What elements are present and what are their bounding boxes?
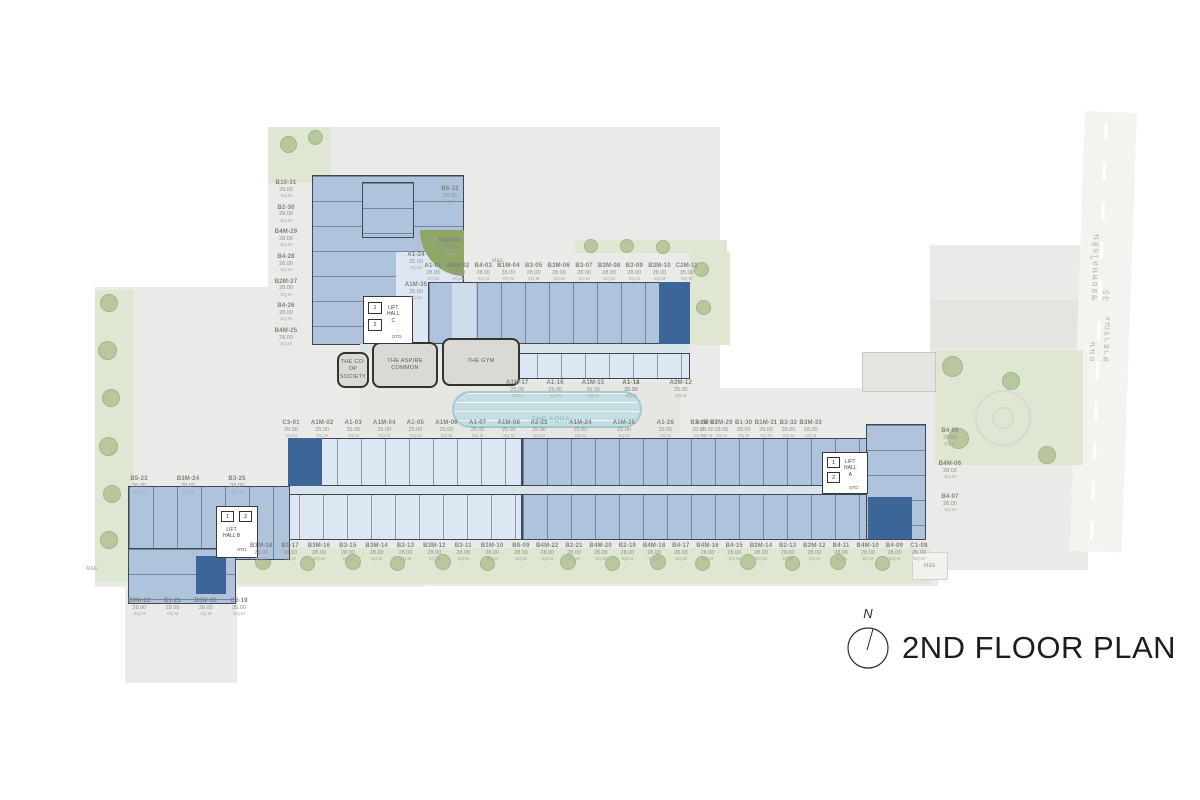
unit-id: A1M-17 (506, 380, 529, 387)
unit-label: B2M-12 28.00 SQ.M (803, 543, 826, 561)
unit-label: B3-32 28.00 SQ.M (779, 420, 797, 438)
unit-sqm: SQ.M (889, 556, 901, 561)
unit-sqm: SQ.M (167, 611, 179, 616)
north-compass-icon: N (840, 604, 900, 674)
tree (100, 294, 118, 312)
unit-id: B4M-06 (939, 461, 962, 468)
unit-sqm: SQ.M (862, 556, 874, 561)
unit-id: B4M-02 (447, 263, 470, 270)
unit-label: B4-09 28.00 SQ.M (886, 543, 904, 561)
unit-sqm: SQ.M (284, 556, 296, 561)
tree (102, 389, 120, 407)
unit-id: B3-13 (397, 543, 414, 550)
unit-id: B4M-29 (275, 229, 298, 236)
unit-label: B4M-06 28.00 SQ.M (939, 461, 962, 479)
central-wing-north-west (288, 438, 522, 486)
unit-id: C3-01 (282, 420, 299, 427)
unit-sqm: SQ.M (313, 556, 325, 561)
top-row-labels: A1-01 28.00 SQ.M B4M-02 28.00 SQ.M B4-03… (424, 263, 698, 281)
unit-sqm: SQ.M (944, 441, 956, 446)
tree (620, 239, 634, 253)
tree (308, 130, 323, 145)
road-name-label: ถนนสาธารณะ ซอยพหลโยธิน 35 (1084, 231, 1117, 362)
unit-sqm: SQ.M (486, 556, 498, 561)
unit-id: B4-17 (672, 543, 689, 550)
unit-label: B4M-33 28.00 SQ.M (439, 238, 462, 256)
unit-label: A1-03 25.00 SQ.M (344, 420, 362, 438)
unit-label: B2-19 28.00 SQ.M (618, 543, 636, 561)
unit-id: B3-09 (626, 263, 643, 270)
lift-a-1: 1 (827, 457, 840, 468)
unit-label: A1-24 25.00 SQ.M (407, 252, 425, 270)
unit-label: C2-19 35.00 SQ.M (230, 598, 248, 616)
unit-sqm: SQ.M (410, 433, 422, 438)
unit-label: B3M-06 28.00 SQ.M (548, 263, 571, 281)
central-row-west-labels: C3-01 35.00 SQ.M A1M-02 25.00 SQ.M A1-03… (282, 420, 520, 438)
unit-sqm: SQ.M (134, 611, 146, 616)
unit-label: B3M-14 28.00 SQ.M (365, 543, 388, 561)
page-title: 2ND FLOOR PLAN (902, 630, 1176, 666)
unit-label: A1M-35 25.00 SQ.M (405, 282, 428, 300)
unit-label: B2-13 28.00 SQ.M (779, 543, 797, 561)
tree (584, 239, 598, 253)
lift-hall-b-sto: STO. (237, 547, 247, 552)
unit-label: B4M-10 28.00 SQ.M (857, 543, 880, 561)
coop-society-room: THE CO-OP SOCIETY (337, 352, 369, 388)
lift-hall-a-sto: STO. (849, 485, 859, 490)
unit-label: B3M-20 28.00 SQ.M (194, 598, 217, 616)
unit-sqm: SQ.M (472, 433, 484, 438)
unit-sqm: SQ.M (716, 433, 728, 438)
unit-id: A1-01 (424, 263, 441, 270)
unit-label: B3-15 28.00 SQ.M (339, 543, 357, 561)
mid-row-west-labels: A1M-17 25.00 SQ.M A1-16 25.00 SQ.M A1M-1… (506, 380, 640, 398)
unit-id: B3M-12 (423, 543, 446, 550)
unit-id: B1M-10 (481, 543, 504, 550)
unit-sqm: SQ.M (280, 218, 292, 223)
unit-id: A1-13 (622, 380, 639, 387)
unit-label: B5-23 38.00 SQ.M (130, 476, 148, 494)
unit-sqm: SQ.M (444, 251, 456, 256)
unit-label: A1-01 28.00 SQ.M (424, 263, 442, 281)
unit-label: B3M-16 28.00 SQ.M (308, 543, 331, 561)
unit-label: A1M-04 25.00 SQ.M (373, 420, 396, 438)
unit-sqm: SQ.M (280, 242, 292, 247)
unit-label: B1-17 28.00 SQ.M (281, 543, 299, 561)
unit-label: B1M-18 28.00 SQ.M (250, 543, 273, 561)
unit-id: B4M-22 (536, 543, 559, 550)
unit-sqm: SQ.M (427, 276, 439, 281)
unit-label: B2-21 28.00 SQ.M (565, 543, 583, 561)
lift-b-1: 1 (221, 511, 234, 522)
unit-label: A1-07 25.00 SQ.M (469, 420, 487, 438)
unit-id: A1M-15 (582, 380, 605, 387)
unit-label: B1M-04 35.00 SQ.M (497, 263, 520, 281)
unit-sqm: SQ.M (587, 393, 599, 398)
unit-sqm: SQ.M (693, 433, 705, 438)
corner-unit-east-dark (868, 497, 912, 539)
west-wing-labels: B10-31 28.00 SQ.M B2-30 28.00 SQ.M B4M-2… (264, 180, 308, 346)
unit-label: B3-25 38.00 SQ.M (228, 476, 246, 494)
lift-hall-c-label: LIFT HALL C (387, 305, 400, 324)
unit-label: B3-28 28.00 SQ.M (690, 420, 708, 438)
unit-sqm: SQ.M (503, 433, 515, 438)
unit-id: B5-23 (130, 476, 147, 483)
unit-label: B3M-33 28.00 SQ.M (799, 420, 822, 438)
corner-unit-southwest-dark (196, 556, 226, 594)
unit-sqm: SQ.M (478, 276, 490, 281)
unit-id: A1M-04 (373, 420, 396, 427)
unit-id: B6-32 (441, 186, 458, 193)
unit-label: B3M-24 28.00 SQ.M (177, 476, 200, 494)
unit-label: B4-11 28.00 SQ.M (832, 543, 850, 561)
plaza-path-ring-inner (992, 407, 1014, 429)
unit-id: B3-11 (455, 543, 472, 550)
unit-id: A1M-35 (405, 282, 428, 289)
unit-sqm: SQ.M (675, 393, 687, 398)
unit-label: B3-11 28.00 SQ.M (454, 543, 472, 561)
unit-sqm: SQ.M (316, 433, 328, 438)
tree (1038, 446, 1056, 464)
lift-c-1: 1 (368, 302, 382, 314)
unit-sqm: SQ.M (280, 316, 292, 321)
unit-id: A1-24 (407, 252, 424, 259)
unit-id: B4-07 (941, 494, 958, 501)
unit-id: B2M-12 (803, 543, 826, 550)
unit-id: B3-05 (525, 263, 542, 270)
unit-id: B4-09 (886, 543, 903, 550)
unit-id: B4M-33 (439, 238, 462, 245)
lift-b-2: 2 (239, 511, 252, 522)
unit-sqm: SQ.M (285, 433, 297, 438)
driveway (930, 300, 1090, 348)
unit-label: B2M-27 28.00 SQ.M (275, 279, 298, 297)
unit-id: B3M-10 (648, 263, 671, 270)
corner-unit-c3-01 (288, 438, 322, 486)
unit-sqm: SQ.M (728, 556, 740, 561)
north-block-labels: B6-32 28.00 SQ.M B4M-33 28.00 SQ.M (428, 186, 472, 256)
unit-id: A2M-12 (669, 380, 692, 387)
unit-sqm: SQ.M (629, 276, 641, 281)
unit-id: B1M-18 (250, 543, 273, 550)
mid-row-east-labels: A1-13 25.00 SQ.M A2M-12 25.00 SQ.M (622, 380, 692, 398)
unit-label: C1-08 35.00 SQ.M (910, 543, 928, 561)
unit-label: B3M-08 28.00 SQ.M (598, 263, 621, 281)
unit-label: A1M-24 25.00 SQ.M (569, 420, 592, 438)
tree (1002, 372, 1020, 390)
unit-id: A1M-08 (497, 420, 520, 427)
tree (942, 356, 963, 377)
unit-id: B4-26 (277, 303, 294, 310)
unit-id: B2-19 (619, 543, 636, 550)
unit-sqm: SQ.M (575, 433, 587, 438)
north-block-building (362, 182, 414, 238)
unit-sqm: SQ.M (182, 489, 194, 494)
unit-label: B4-26 28.00 SQ.M (277, 303, 295, 321)
unit-id: B1-30 (735, 420, 752, 427)
unit-label: A1M-25 25.00 SQ.M (613, 420, 636, 438)
unit-label: B4M-20 28.00 SQ.M (589, 543, 612, 561)
unit-label: B2-30 28.00 SQ.M (277, 205, 295, 223)
unit-label: B1M-10 28.00 SQ.M (481, 543, 504, 561)
central-row-east-labels: B3-28 28.00 SQ.M B3M-29 28.00 SQ.M B1-30… (690, 420, 822, 438)
unit-label: B3M-29 28.00 SQ.M (710, 420, 733, 438)
unit-id: A1-05 (407, 420, 424, 427)
lift-hall-c-sto: STO. (392, 334, 402, 339)
aspire-common-label: THE ASPIRE COMMON (387, 358, 422, 372)
southwest-top-labels: B5-23 38.00 SQ.M B3M-24 28.00 SQ.M B3-25… (130, 476, 246, 494)
unit-label: B4-15 28.00 SQ.M (725, 543, 743, 561)
central-wing-south-west (250, 494, 522, 540)
unit-sqm: SQ.M (595, 556, 607, 561)
central-wing-south-east (522, 494, 908, 540)
unit-id: B9M-22 (128, 598, 151, 605)
unit-sqm: SQ.M (457, 556, 469, 561)
unit-sqm: SQ.M (512, 393, 524, 398)
unit-id: B2-21 (565, 543, 582, 550)
floor-plan-canvas: ถนนสาธารณะ ซอยพหลโยธิน 35 THE AQUA (0, 0, 1200, 800)
unit-id: B3M-24 (177, 476, 200, 483)
unit-sqm: SQ.M (342, 556, 354, 561)
unit-id: B3-32 (780, 420, 797, 427)
unit-id: A1-16 (547, 380, 564, 387)
gym-label: THE GYM (467, 358, 494, 365)
unit-label: B9-09 28.00 SQ.M (512, 543, 530, 561)
coop-society-label: THE CO-OP SOCIETY (339, 359, 367, 380)
unit-id: B3M-20 (194, 598, 217, 605)
unit-id: B3-07 (575, 263, 592, 270)
unit-sqm: SQ.M (444, 199, 456, 204)
unit-sqm: SQ.M (233, 611, 245, 616)
unit-label: B4-28 28.00 SQ.M (277, 254, 295, 272)
unit-label: B9M-22 28.00 SQ.M (128, 598, 151, 616)
lift-c-2: 2 (368, 319, 382, 331)
unit-id: B1-21 (164, 598, 181, 605)
unit-label: B2M-14 28.00 SQ.M (750, 543, 773, 561)
unit-sqm: SQ.M (603, 276, 615, 281)
unit-id: B2M-14 (750, 543, 773, 550)
central-corridor (288, 486, 908, 494)
unit-sqm: SQ.M (528, 276, 540, 281)
unit-label: C2M-11 35.00 SQ.M (676, 263, 698, 281)
road-name-line2: ซอยพหลโยธิน 35 (1086, 231, 1116, 301)
unit-id: A1M-24 (569, 420, 592, 427)
unit-sqm: SQ.M (549, 393, 561, 398)
south-row-west-labels: B1M-18 28.00 SQ.M B1-17 28.00 SQ.M B3M-1… (250, 543, 530, 561)
unit-id: B4M-18 (643, 543, 666, 550)
unit-sqm: SQ.M (654, 276, 666, 281)
unit-sqm: SQ.M (944, 507, 956, 512)
unit-id: A1-07 (469, 420, 486, 427)
unit-sqm: SQ.M (429, 556, 441, 561)
unit-id: B2-13 (779, 543, 796, 550)
unit-label: B3-13 28.00 SQ.M (397, 543, 415, 561)
unit-id: A1-03 (345, 420, 362, 427)
tree (99, 437, 118, 456)
unit-label: C3-01 35.00 SQ.M (282, 420, 300, 438)
lift-hall-a-label: LIFT HALL A (844, 459, 857, 478)
unit-sqm: SQ.M (809, 556, 821, 561)
unit-label: A1M-15 25.00 SQ.M (582, 380, 605, 398)
unit-id: B4M-10 (857, 543, 880, 550)
unit-sqm: SQ.M (782, 556, 794, 561)
north-wing-pale-unit (452, 283, 476, 343)
unit-sqm: SQ.M (441, 433, 453, 438)
unit-id: B3M-14 (365, 543, 388, 550)
tree (696, 300, 711, 315)
unit-label: B6-32 28.00 SQ.M (441, 186, 459, 204)
svg-text:N: N (863, 606, 873, 621)
unit-id: B3-25 (228, 476, 245, 483)
road-name-line1: ถนนสาธารณะ (1084, 305, 1114, 362)
unit-sqm: SQ.M (515, 556, 527, 561)
east-col-labels: B4-05 28.00 SQ.M B4M-06 28.00 SQ.M B4-07… (930, 428, 970, 512)
unit-sqm: SQ.M (503, 276, 515, 281)
aspire-common-room: THE ASPIRE COMMON (372, 342, 438, 388)
unit-sqm: SQ.M (347, 433, 359, 438)
unit-id: B3-15 (339, 543, 356, 550)
unit-label: A2-23 25.00 SQ.M (530, 420, 548, 438)
unit-id: B3-28 (690, 420, 707, 427)
unit-id: C2-19 (230, 598, 247, 605)
unit-id: B9-09 (512, 543, 529, 550)
unit-id: B4-15 (726, 543, 743, 550)
corner-unit-c2m11 (659, 282, 690, 348)
service-structure (862, 352, 936, 392)
unit-label: B3M-12 28.00 SQ.M (423, 543, 446, 561)
unit-sqm: SQ.M (622, 556, 634, 561)
unit-sqm: SQ.M (568, 556, 580, 561)
unit-label: B1M-31 28.00 SQ.M (755, 420, 778, 438)
unit-sqm: SQ.M (133, 489, 145, 494)
unit-sqm: SQ.M (280, 341, 292, 346)
unit-sqm: SQ.M (738, 433, 750, 438)
south-row-east-labels: B4M-22 28.00 SQ.M B2-21 28.00 SQ.M B4M-2… (536, 543, 928, 561)
unit-sqm: SQ.M (578, 276, 590, 281)
unit-id: B3M-16 (308, 543, 331, 550)
unit-label: B4M-16 28.00 SQ.M (696, 543, 719, 561)
unit-id: A1M-06 (435, 420, 458, 427)
unit-sqm: SQ.M (944, 474, 956, 479)
gym-room: THE GYM (442, 338, 520, 386)
unit-sqm: SQ.M (542, 556, 554, 561)
unit-id: B4M-20 (589, 543, 612, 550)
unit-sqm: SQ.M (280, 193, 292, 198)
unit-label: B3-09 28.00 SQ.M (625, 263, 643, 281)
unit-label: B4-03 28.00 SQ.M (474, 263, 492, 281)
unit-sqm: SQ.M (760, 433, 772, 438)
unit-label: B3M-10 28.00 SQ.M (648, 263, 671, 281)
tree (280, 136, 297, 153)
unit-sqm: SQ.M (280, 292, 292, 297)
unit-sqm: SQ.M (231, 489, 243, 494)
unit-label: B3-07 28.00 SQ.M (575, 263, 593, 281)
public-road: ถนนสาธารณะ ซอยพหลโยธิน 35 (1070, 111, 1137, 553)
unit-label: B4-05 28.00 SQ.M (941, 428, 959, 446)
unit-sqm: SQ.M (452, 276, 464, 281)
unit-label: B3-05 28.00 SQ.M (525, 263, 543, 281)
unit-sqm: SQ.M (410, 295, 422, 300)
unit-id: B1M-04 (497, 263, 520, 270)
unit-sqm: SQ.M (256, 556, 268, 561)
unit-sqm: SQ.M (783, 433, 795, 438)
lift-hall-a: 1 2 LIFT HALL A STO. (822, 452, 868, 494)
lift-hall-c: 1 2 LIFT HALL C STO. (363, 296, 413, 344)
unit-label: B4M-29 28.00 SQ.M (275, 229, 298, 247)
unit-sqm: SQ.M (371, 556, 383, 561)
unit-label: A1-16 25.00 SQ.M (546, 380, 564, 398)
unit-id: C2M-11 (676, 263, 698, 270)
tree (100, 531, 118, 549)
unit-label: B10-31 28.00 SQ.M (276, 180, 297, 198)
north-south-row-building (512, 353, 690, 379)
unit-id: C1-08 (910, 543, 927, 550)
unit-id: B3M-29 (710, 420, 733, 427)
unit-label: B1-21 28.00 SQ.M (164, 598, 182, 616)
unit-label: B4-07 28.00 SQ.M (941, 494, 959, 512)
unit-sqm: SQ.M (660, 433, 672, 438)
unit-label: B4M-25 28.00 SQ.M (275, 328, 298, 346)
unit-label: A1M-02 25.00 SQ.M (311, 420, 334, 438)
unit-label: A1-13 25.00 SQ.M (622, 380, 640, 398)
unit-sqm: SQ.M (410, 265, 422, 270)
unit-sqm: SQ.M (702, 556, 714, 561)
unit-id: B1-17 (281, 543, 298, 550)
unit-label: A1M-06 25.00 SQ.M (435, 420, 458, 438)
unit-id: B3M-06 (548, 263, 571, 270)
unit-id: B1M-31 (755, 420, 778, 427)
unit-label: B4-17 28.00 SQ.M (672, 543, 690, 561)
unit-sqm: SQ.M (805, 433, 817, 438)
tree (98, 341, 117, 360)
unit-id: B4-11 (833, 543, 850, 550)
unit-sqm: SQ.M (913, 556, 925, 561)
unit-label: A1-05 25.00 SQ.M (406, 420, 424, 438)
unit-sqm: SQ.M (675, 556, 687, 561)
unit-label: B4M-18 28.00 SQ.M (643, 543, 666, 561)
unit-id: B2M-27 (275, 279, 298, 286)
unit-sqm: SQ.M (280, 267, 292, 272)
unit-sqm: SQ.M (379, 433, 391, 438)
unit-id: B4M-25 (275, 328, 298, 335)
unit-label: B1-30 28.00 SQ.M (735, 420, 753, 438)
unit-label: A2M-12 25.00 SQ.M (669, 380, 692, 398)
unit-sqm: SQ.M (681, 276, 693, 281)
unit-sqm: SQ.M (200, 611, 212, 616)
unit-id: A2-23 (530, 420, 547, 427)
lift-a-2: 2 (827, 472, 840, 483)
unit-id: A1M-25 (613, 420, 636, 427)
unit-id: A1M-02 (311, 420, 334, 427)
unit-sqm: SQ.M (625, 393, 637, 398)
unit-id: B2-30 (277, 205, 294, 212)
unit-id: B4M-16 (696, 543, 719, 550)
lift-hall-b-label: LIFT HALL B (223, 527, 240, 540)
tree (656, 240, 670, 254)
unit-id: A1-26 (657, 420, 674, 427)
unit-sqm: SQ.M (533, 433, 545, 438)
unit-label: A1M-17 25.00 SQ.M (506, 380, 529, 398)
unit-sqm: SQ.M (400, 556, 412, 561)
unit-id: B3M-08 (598, 263, 621, 270)
unit-id: B10-31 (276, 180, 297, 187)
unit-label: A1M-08 25.00 SQ.M (497, 420, 520, 438)
unit-id: B4-05 (941, 428, 958, 435)
unit-sqm: SQ.M (648, 556, 660, 561)
unit-label: B4M-22 28.00 SQ.M (536, 543, 559, 561)
unit-label: B4M-02 28.00 SQ.M (447, 263, 470, 281)
unit-id: B4-03 (475, 263, 492, 270)
